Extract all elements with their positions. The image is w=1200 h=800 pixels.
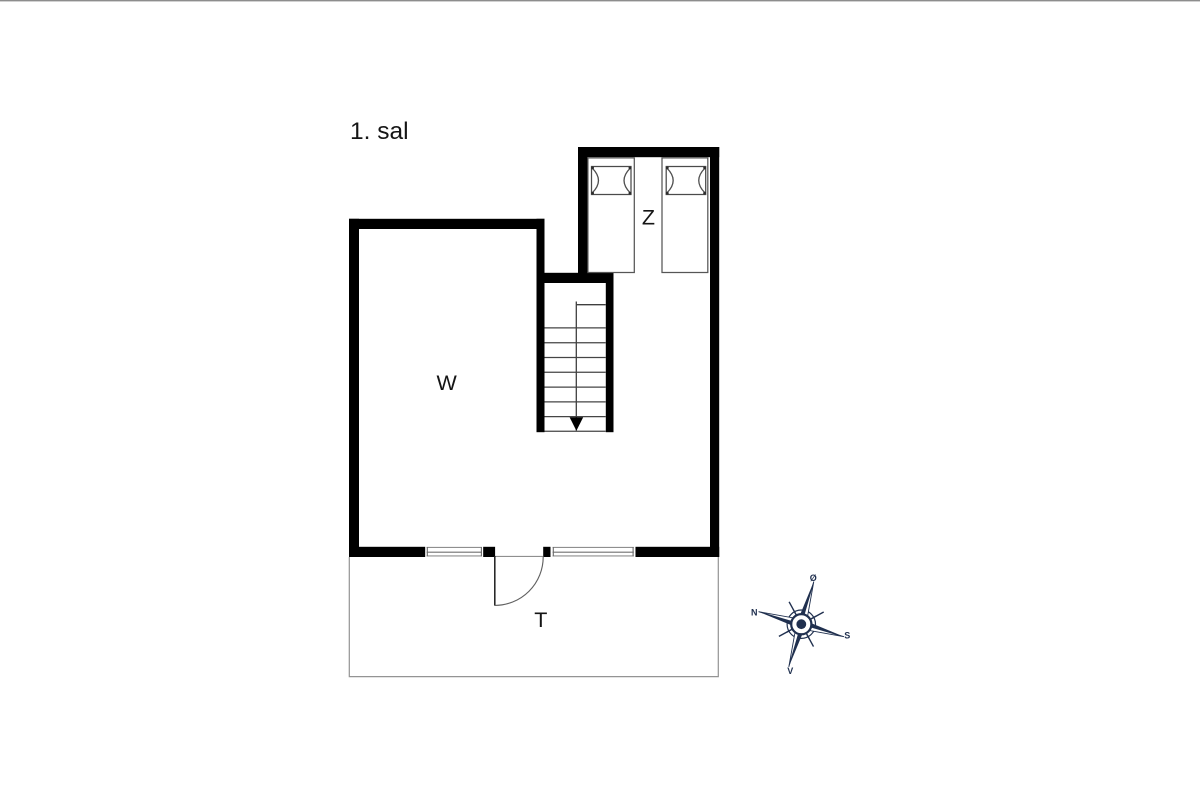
- svg-text:V: V: [787, 666, 793, 676]
- svg-text:Ø: Ø: [810, 573, 817, 583]
- svg-text:Z: Z: [642, 205, 655, 229]
- svg-text:W: W: [437, 371, 458, 395]
- svg-text:1. sal: 1. sal: [350, 118, 409, 145]
- svg-text:N: N: [751, 608, 758, 618]
- svg-text:T: T: [534, 608, 547, 632]
- svg-text:S: S: [844, 631, 850, 641]
